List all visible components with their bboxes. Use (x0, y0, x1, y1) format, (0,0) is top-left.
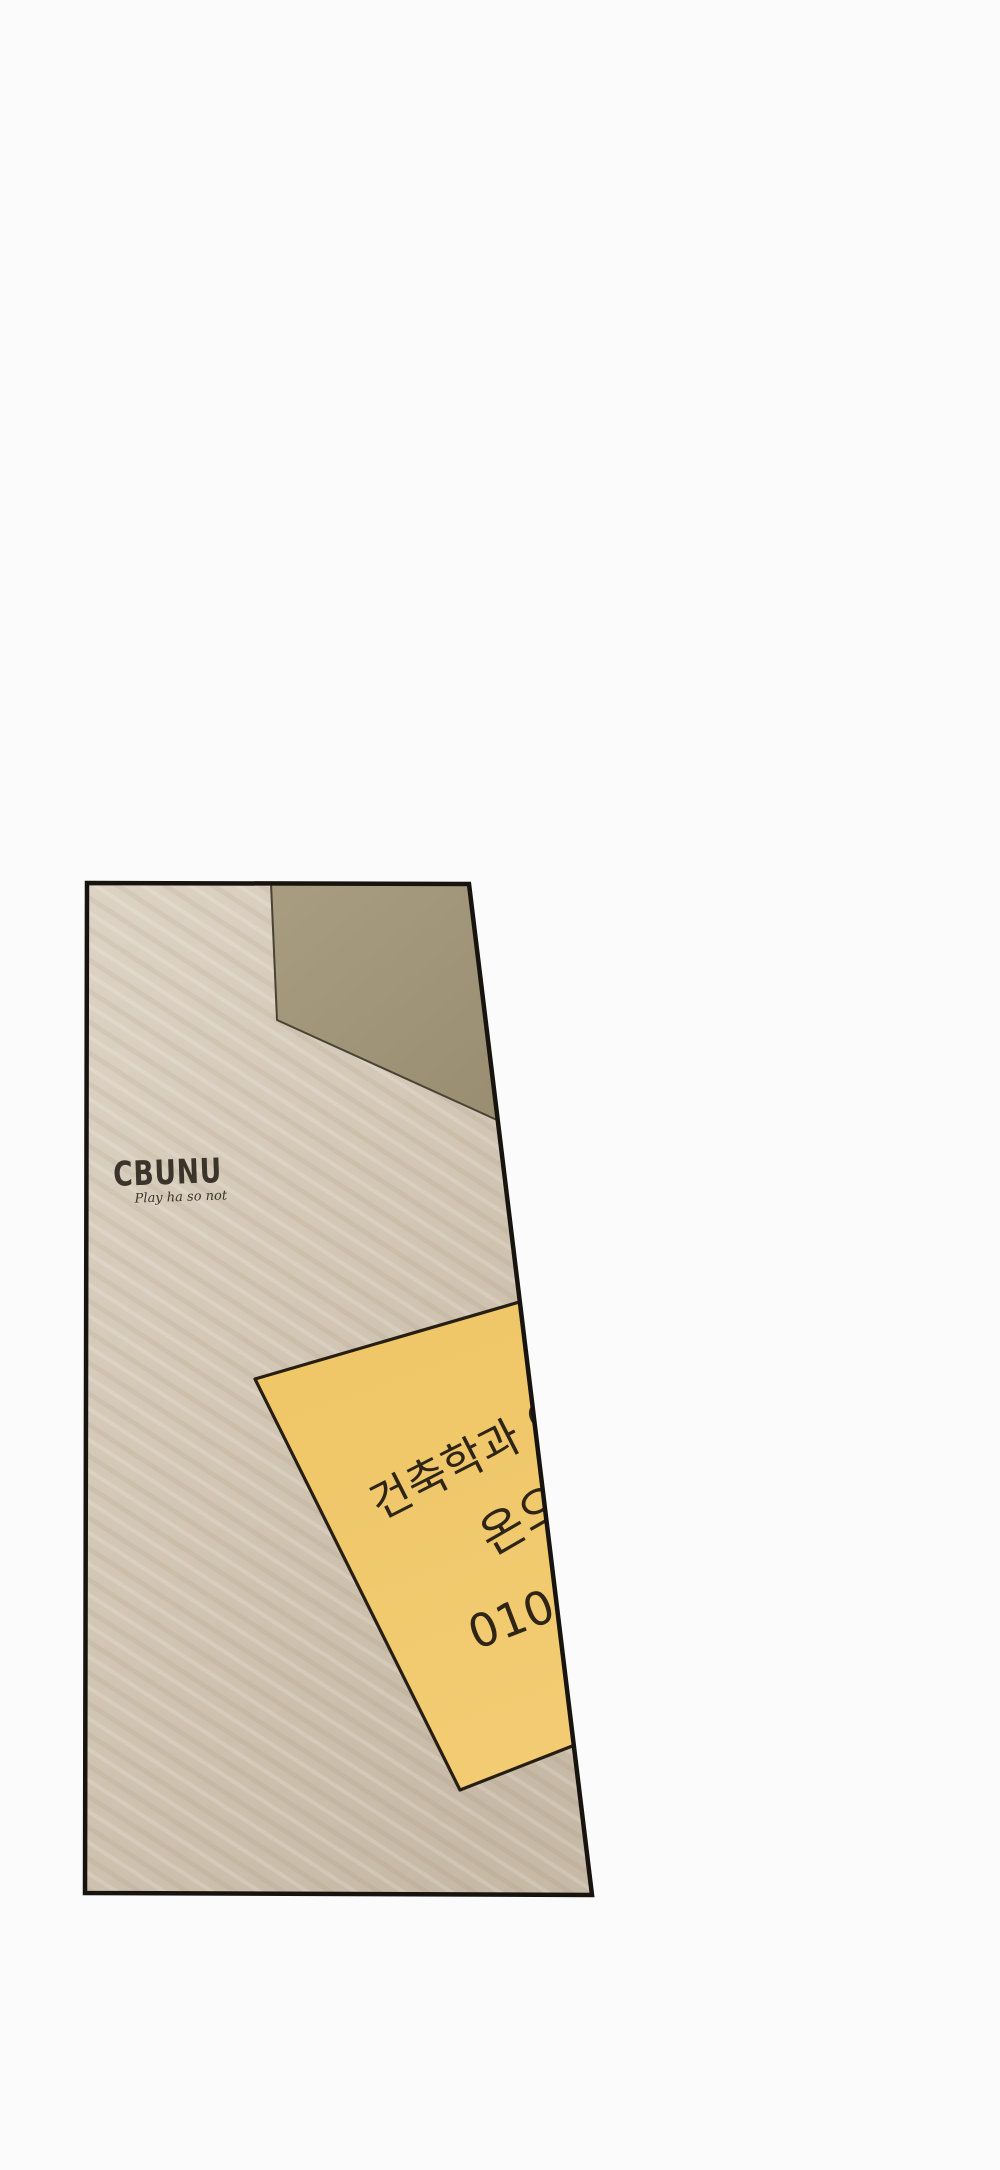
webtoon-page: CBUNU Play ha so not 건축학과 이 온으 010- (0, 0, 1000, 2170)
comic-panel-canvas: CBUNU Play ha so not 건축학과 이 온으 010- (0, 0, 1000, 2170)
